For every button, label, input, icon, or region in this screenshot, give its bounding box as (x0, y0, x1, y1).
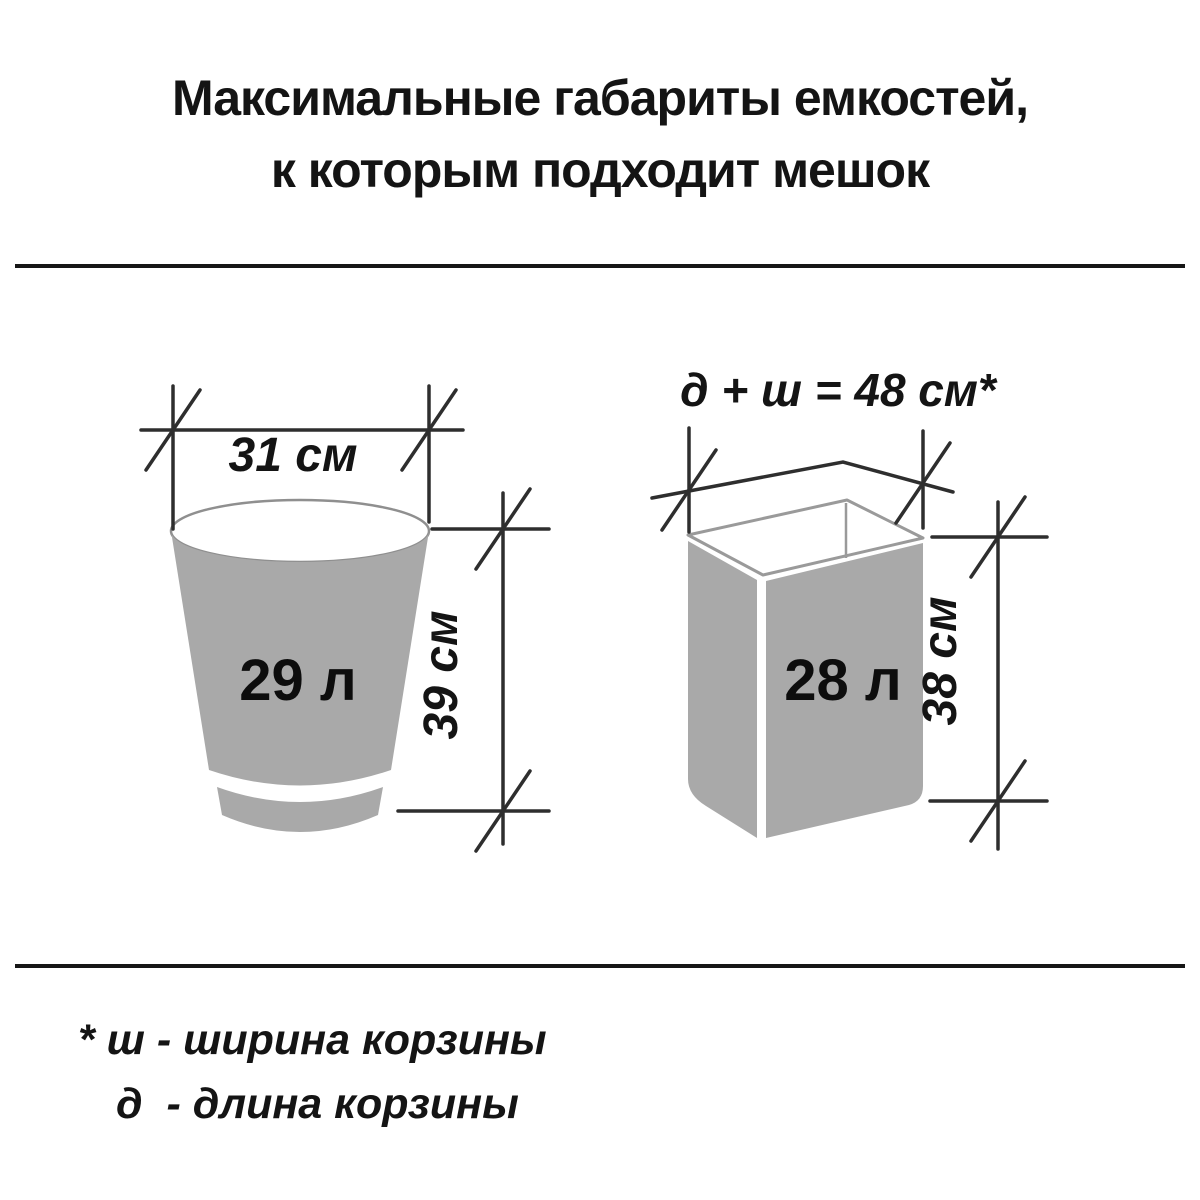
bucket-figure: 31 см 39 см 29 л (141, 386, 549, 851)
basket-figure: д + ш = 48 см* 38 см 28 л (652, 364, 1047, 849)
bucket-height-label: 39 см (415, 611, 468, 740)
basket-perimeter-label: д + ш = 48 см* (680, 364, 998, 416)
bucket-rim (171, 500, 429, 562)
basket-height-label: 38 см (914, 597, 967, 726)
bucket-width-label: 31 см (229, 429, 358, 482)
bucket-volume-label: 29 л (239, 648, 356, 713)
infographic-page: Максимальные габариты емкостей, к которы… (0, 0, 1200, 1200)
divider-bottom (15, 964, 1185, 968)
basket-volume-label: 28 л (784, 648, 901, 713)
footnote-line-width: * ш - ширина корзины (78, 1008, 547, 1072)
footnote-line-length: д - длина корзины (78, 1072, 547, 1136)
footnote: * ш - ширина корзины д - длина корзины (78, 1008, 547, 1136)
bucket-base (217, 787, 383, 832)
basket-left-face (688, 541, 757, 838)
